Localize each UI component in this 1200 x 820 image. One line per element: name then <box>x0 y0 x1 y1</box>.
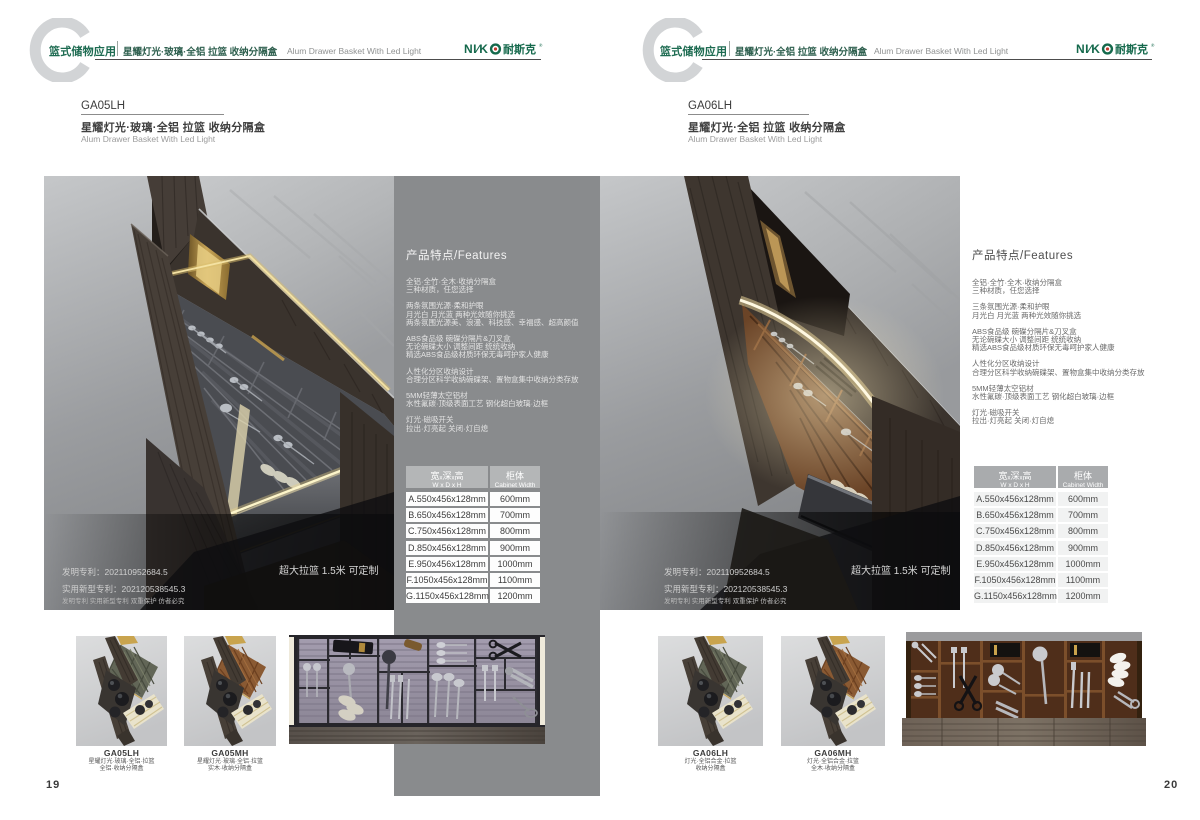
svg-text:NI∕K: NI∕K <box>1076 42 1100 56</box>
svg-text:耐斯克: 耐斯克 <box>1115 42 1148 56</box>
svg-text:®: ® <box>1151 42 1155 48</box>
svg-text:®: ® <box>539 42 543 48</box>
svg-text:耐斯克: 耐斯克 <box>503 42 536 56</box>
svg-text:NI∕K: NI∕K <box>464 42 488 56</box>
